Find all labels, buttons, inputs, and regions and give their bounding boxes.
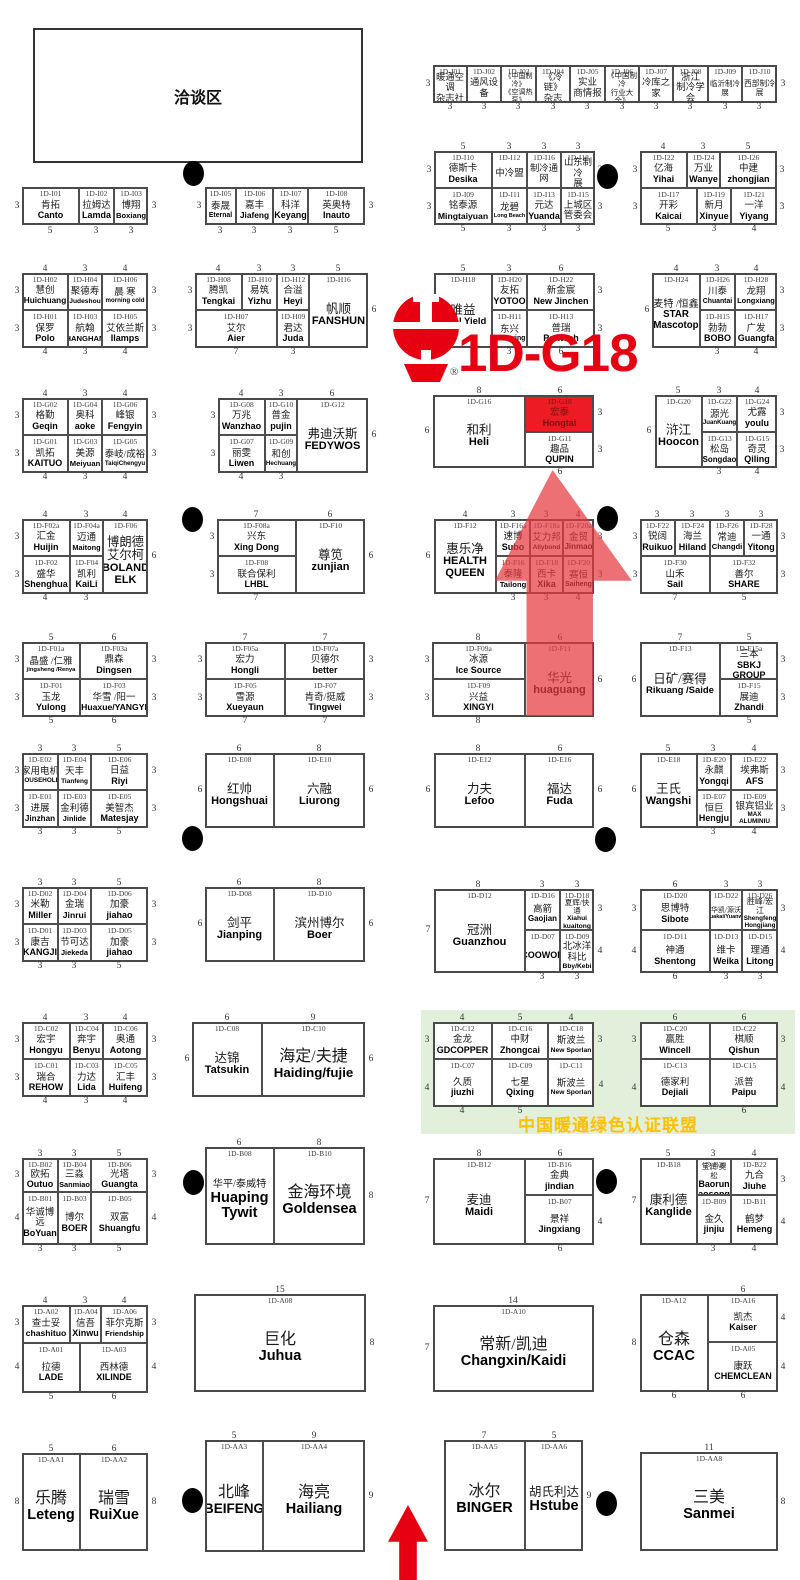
booth-id: 1D-G09 bbox=[269, 437, 294, 446]
dimension-label: 4 bbox=[781, 1313, 786, 1323]
dimension-label: 5 bbox=[742, 593, 747, 603]
booth-name-en: BOLAND ELK bbox=[103, 563, 148, 587]
booth-name-en: Benyu bbox=[73, 1046, 101, 1056]
dimension-label: 3 bbox=[507, 264, 512, 274]
dimension-label: 4 bbox=[752, 1149, 757, 1159]
booth-cell: 1D-B16金典jindian bbox=[525, 1158, 594, 1195]
booth-cell: 1D-C06奥通Aotong bbox=[103, 1022, 148, 1059]
dimension-label: 3 bbox=[15, 1170, 20, 1180]
dimension-label: 3 bbox=[15, 286, 20, 296]
dimension-label: 3 bbox=[72, 961, 77, 971]
booth-name-cn: 红帅 bbox=[227, 782, 252, 796]
booth-names: 宏力Hongli bbox=[231, 653, 259, 678]
booth-names: 北峰BEIFENG bbox=[205, 1451, 263, 1551]
dimension-label: 3 bbox=[152, 938, 157, 948]
dimension-label: 3 bbox=[129, 226, 134, 236]
dimension-label: 3 bbox=[633, 202, 638, 212]
booth-id: 1D-A01 bbox=[39, 1345, 64, 1354]
booth-name-en: jiuzhi bbox=[451, 1088, 474, 1098]
booth-name-en: RuiXue bbox=[89, 1508, 139, 1524]
dimension-label: 5 bbox=[461, 142, 466, 152]
booth-id: 1D-E02 bbox=[28, 755, 52, 764]
dimension-label: 3 bbox=[252, 226, 257, 236]
booth-id: 1D-I03 bbox=[120, 189, 142, 198]
booth-cell: 1D-A04信吾Xinwu bbox=[70, 1305, 101, 1343]
booth-id: 1D-B16 bbox=[547, 1160, 571, 1169]
booth-id: 1D-I16 bbox=[533, 153, 555, 162]
dimension-label: 3 bbox=[725, 510, 730, 520]
booth-cell: 1D-E06日益Riyi bbox=[91, 753, 148, 790]
booth-id: 1D-C16 bbox=[508, 1024, 532, 1033]
booth-id: 1D-G16 bbox=[467, 397, 492, 406]
booth-name-en: Yiyang bbox=[739, 212, 768, 222]
booth-name-en: HEALTH QUEEN bbox=[443, 556, 487, 580]
dimension-label: 6 bbox=[672, 1391, 677, 1401]
booth-names: 《中国制冷》 《空调热泵》 bbox=[502, 76, 535, 102]
booth-name-en: Kaicai bbox=[655, 212, 682, 222]
booth-cell: 1D-F09兴益XINGYI bbox=[432, 679, 525, 717]
booth-id: 1D-H13 bbox=[549, 312, 574, 321]
dimension-label: 7 bbox=[254, 510, 259, 520]
booth-id: 1D-G05 bbox=[113, 437, 138, 446]
dimension-label: 4 bbox=[43, 472, 48, 482]
booth-names: 金利德Jinlide bbox=[60, 801, 89, 827]
dimension-label: 3 bbox=[781, 532, 786, 542]
booth-id: 1D-A02 bbox=[34, 1307, 59, 1316]
dimension-label: 8 bbox=[369, 1191, 374, 1201]
booth-cell: 1D-E10六融Liurong bbox=[274, 753, 365, 828]
booth-name-en: Judeshou bbox=[69, 298, 101, 305]
dimension-label: 4 bbox=[755, 386, 760, 396]
dimension-label: 3 bbox=[655, 510, 660, 520]
booth-name-en: BoYuan bbox=[23, 1229, 57, 1239]
booth-names: 金典jindian bbox=[545, 1169, 574, 1194]
dimension-label: 4 bbox=[781, 1083, 786, 1093]
booth-name-en: jindian bbox=[545, 1182, 574, 1192]
booth-cell: 1D-C13德家利Dejiali bbox=[640, 1059, 710, 1107]
dimension-label: 4 bbox=[598, 946, 603, 956]
booth-id: 1D-F04 bbox=[75, 558, 98, 567]
dimension-label: 3 bbox=[781, 570, 786, 580]
dimension-label: 5 bbox=[49, 633, 54, 643]
booth-name-en: TaiqiChengyu bbox=[105, 461, 145, 468]
booth-cell: 1D-I16制冷通网 bbox=[527, 151, 561, 188]
booth-name-en: Guangfa bbox=[738, 334, 775, 344]
booth-name-en: chashituo bbox=[26, 1329, 67, 1338]
booth-id: 1D-I13 bbox=[533, 190, 555, 199]
booth-names: 力夫Lefoo bbox=[465, 764, 495, 827]
booth-names: 普金pujin bbox=[270, 409, 292, 434]
booth-id: 1D-D01 bbox=[28, 926, 53, 935]
booth-id: 1D-AA1 bbox=[38, 1455, 64, 1464]
booth-name-en: CHEMCLEAN bbox=[714, 1372, 772, 1382]
dimension-label: 4 bbox=[43, 389, 48, 399]
dimension-label: 3 bbox=[83, 472, 88, 482]
booth-names: 力达Lida bbox=[77, 1070, 96, 1096]
booth-names: 友拓YOTOO bbox=[493, 284, 525, 309]
dimension-label: 4 bbox=[781, 946, 786, 956]
booth-names: 维卡Weika bbox=[713, 941, 739, 972]
dimension-label: 3 bbox=[152, 201, 157, 211]
booth-cell: 1D-H12合溢Heyi bbox=[277, 273, 309, 310]
booth-names: 日益Riyi bbox=[110, 764, 129, 789]
dimension-label: 3 bbox=[15, 411, 20, 421]
booth-name-cn: 惠乐净 bbox=[446, 542, 484, 556]
booth-names: 节可达Jiekeda bbox=[60, 935, 89, 961]
booth-name-en: Juhua bbox=[259, 1349, 302, 1365]
dimension-label: 3 bbox=[717, 467, 722, 477]
booth-id: 1D-E10 bbox=[308, 755, 332, 764]
booth-id: 1D-I02 bbox=[86, 189, 108, 198]
booth-id: 1D-A05 bbox=[731, 1344, 756, 1353]
booth-name-en: Xiahui kuaitong bbox=[563, 915, 591, 929]
booth-name-en: Jingxiang bbox=[538, 1225, 580, 1235]
booth-name-cn: 三美 bbox=[693, 1489, 725, 1507]
booth-cell: 1D-I02拉姆达Lamda bbox=[79, 187, 114, 225]
booth-name-en: Juda bbox=[282, 334, 303, 344]
booth-name-cn: 麦迪 bbox=[466, 1193, 491, 1207]
dimension-label: 3 bbox=[780, 286, 785, 296]
dimension-label: 3 bbox=[576, 142, 581, 152]
dimension-label: 3 bbox=[540, 972, 545, 982]
booth-cell: 1D-G12弗迪沃斯FEDYWOS bbox=[297, 398, 368, 473]
booth-names: 西部制冷展 bbox=[743, 76, 776, 102]
dimension-label: 4 bbox=[122, 1296, 127, 1306]
booth-name-en: Heli bbox=[469, 437, 489, 449]
dimension-label: 7 bbox=[243, 716, 248, 726]
booth-name-en: Aotong bbox=[110, 1046, 142, 1056]
booth-cell: 1D-H09君达Juda bbox=[277, 310, 309, 348]
dimension-label: 4 bbox=[463, 510, 468, 520]
booth-names: 加豪jiahao bbox=[106, 935, 132, 961]
booth-id: 1D-F01 bbox=[39, 681, 62, 690]
dimension-label: 3 bbox=[279, 472, 284, 482]
booth-cell: 1D-J08浙江 制冷学会 bbox=[673, 65, 708, 103]
booth-name-cn: 冠洲 bbox=[467, 923, 492, 937]
dimension-label: 4 bbox=[752, 744, 757, 754]
dimension-label: 4 bbox=[674, 264, 679, 274]
dimension-label: 3 bbox=[482, 102, 487, 112]
booth-cell: 1D-G10普金pujin bbox=[265, 398, 297, 435]
dimension-label: 4 bbox=[43, 510, 48, 520]
dimension-label: 3 bbox=[781, 1175, 786, 1185]
dimension-label: 6 bbox=[225, 1013, 230, 1023]
dimension-label: 3 bbox=[781, 655, 786, 665]
booth-cell: 1D-D09北冰洋 科比Bby/Kebi bbox=[560, 930, 594, 973]
booth-names: 迈通Maitong bbox=[72, 530, 100, 555]
booth-name-en: Desika bbox=[448, 175, 477, 185]
booth-cell: 1D-A06菲尔克斯Friendship bbox=[101, 1305, 148, 1343]
dimension-label: 4 bbox=[781, 1217, 786, 1227]
booth-cell: 1D-E05美智杰Matesjay bbox=[91, 790, 148, 828]
booth-names: 艾依兰斯Ilamps bbox=[106, 321, 144, 347]
booth-id: 1D-D16 bbox=[530, 891, 555, 900]
booth-id: 1D-AA5 bbox=[471, 1442, 497, 1451]
booth-id: 1D-F28 bbox=[749, 521, 772, 530]
booth-names: 新金宸New Jinchen bbox=[533, 284, 588, 309]
booth-id: 1D-F22 bbox=[646, 521, 669, 530]
dimension-label: 3 bbox=[448, 102, 453, 112]
booth-cell: 1D-B08华平/泰威特Huaping Tywit bbox=[205, 1147, 274, 1245]
booth-name-en: jingsheng /Renya bbox=[27, 667, 76, 673]
booth-names: 日矿/赛得Rikuang /Saide bbox=[646, 653, 714, 716]
booth-cell: 1D-D08剑平Jianping bbox=[205, 887, 274, 962]
booth-names: 博翔Boxiang bbox=[116, 198, 146, 224]
dimension-label: 3 bbox=[84, 1013, 89, 1023]
booth-names: 菲尔克斯Friendship bbox=[105, 1316, 144, 1342]
dimension-label: 5 bbox=[666, 1149, 671, 1159]
booth-name-en: Jiafeng bbox=[240, 211, 269, 220]
booth-id: 1D-E16 bbox=[548, 755, 572, 764]
booth-cell: 1D-I09铭泰源Mingtaiyuan bbox=[434, 188, 492, 225]
dimension-label: 5 bbox=[49, 716, 54, 726]
dimension-label: 4 bbox=[754, 264, 759, 274]
booth-cell: 1D-D16高箭Gaojian bbox=[525, 889, 560, 930]
dimension-label: 3 bbox=[688, 102, 693, 112]
booth-id: 1D-C06 bbox=[113, 1024, 137, 1033]
booth-cell: 1D-E01进展Jinzhan bbox=[22, 790, 58, 828]
dimension-label: 3 bbox=[542, 142, 547, 152]
booth-name-cn: 暖通空调 杂志社 bbox=[434, 73, 466, 103]
booth-name-en: Haiding/fujie bbox=[274, 1066, 354, 1080]
booth-name-en: SBKJ GROUP bbox=[721, 661, 777, 679]
dimension-label: 5 bbox=[461, 264, 466, 274]
booth-name-cn: 冷库之家 bbox=[640, 78, 672, 99]
booth-id: 1D-G06 bbox=[113, 400, 138, 409]
booth-cell: 1D-I12中冷盟 bbox=[492, 151, 527, 188]
dimension-label: 3 bbox=[427, 202, 432, 212]
booth-cell: 1D-G04奥科aoke bbox=[68, 398, 102, 435]
dimension-label: 11 bbox=[704, 1443, 713, 1453]
booth-names: 惠乐净HEALTH QUEEN bbox=[443, 530, 487, 593]
booth-names: 格勤Geqin bbox=[32, 409, 58, 434]
booth-id: 1D-I21 bbox=[743, 190, 765, 199]
booth-cell: 1D-H08腾凯Tengkai bbox=[195, 273, 242, 310]
dimension-label: 3 bbox=[15, 532, 20, 542]
dimension-label: 7 bbox=[243, 633, 248, 643]
booth-names: 中冷盟 bbox=[495, 162, 524, 187]
booth-cell: 1D-C09七星Qixing bbox=[492, 1059, 548, 1107]
booth-cell: 1D-C05汇丰Huifeng bbox=[103, 1059, 148, 1097]
booth-cell: 1D-G01凯拓KAITUO bbox=[22, 435, 68, 473]
booth-id: 1D-B02 bbox=[28, 1160, 52, 1169]
booth-cell: 1D-F26常迪Changdi bbox=[710, 519, 744, 556]
booth-names: 中建zhongjian bbox=[728, 162, 770, 187]
dimension-label: 3 bbox=[15, 804, 20, 814]
booth-name-cn: 实业 商情报 bbox=[573, 78, 602, 99]
booth-id: 1D-A03 bbox=[102, 1345, 127, 1354]
negotiation-area-label: 洽谈区 bbox=[174, 84, 222, 108]
booth-name-en: Mingtaiyuan bbox=[438, 212, 488, 221]
booth-name-cn: 华平/泰威特 bbox=[213, 1179, 267, 1190]
booth-name-en: Dingsen bbox=[96, 666, 132, 676]
dimension-label: 3 bbox=[633, 165, 638, 175]
booth-id: 1D-A08 bbox=[268, 1296, 293, 1305]
dimension-label: 3 bbox=[711, 1149, 716, 1159]
dimension-label: 3 bbox=[598, 408, 603, 418]
booth-name-en: QUPIN bbox=[545, 455, 574, 465]
booth-id: 1D-C15 bbox=[732, 1061, 756, 1070]
booth-id: 1D-D09 bbox=[565, 932, 590, 941]
booth-names: 晨 寒morning cold bbox=[106, 284, 145, 309]
booth-id: 1D-C22 bbox=[732, 1024, 756, 1033]
booth-cell: 1D-C08达锦Tatsukin bbox=[192, 1022, 262, 1097]
booth-cell: 1D-I06嘉丰Jiafeng bbox=[236, 187, 273, 225]
dimension-label: 6 bbox=[558, 1149, 563, 1159]
booth-names: 滨州博尔Boer bbox=[294, 898, 344, 961]
booth-names: 奇灵Qiling bbox=[744, 443, 770, 467]
booth-name-cn: 日矿/赛得 bbox=[653, 672, 706, 686]
dimension-label: 6 bbox=[558, 386, 563, 396]
dimension-label: 8 bbox=[476, 716, 481, 726]
booth-names: 西林德XILINDE bbox=[96, 1354, 132, 1392]
booth-names: 开彩Kaicai bbox=[655, 199, 682, 224]
booth-name-en: Keyang bbox=[274, 211, 307, 221]
booth-name-en: STAR Mascotop bbox=[653, 310, 698, 331]
booth-id: 1D-D07 bbox=[530, 932, 555, 941]
booth-names: 奔宇Benyu bbox=[73, 1033, 101, 1058]
dimension-label: 3 bbox=[15, 766, 20, 776]
booth-names: 海兰Hiland bbox=[679, 530, 707, 555]
booth-name-cn: 常新/凯迪 bbox=[479, 1336, 547, 1354]
booth-cell: 1D-G15奇灵Qiling bbox=[737, 432, 777, 468]
booth-name-en: Polo bbox=[35, 334, 55, 344]
booth-id: 1D-AA2 bbox=[101, 1455, 127, 1464]
dimension-label: 3 bbox=[758, 972, 763, 982]
dimension-label: 5 bbox=[747, 633, 752, 643]
booth-name-en: Hengju bbox=[699, 814, 729, 824]
booth-name-cn: 冰尔 bbox=[468, 1483, 500, 1501]
booth-cell: 1D-B03博尔BOER bbox=[58, 1192, 91, 1245]
booth-id: 1D-E22 bbox=[743, 755, 767, 764]
booth-id: 1D-D03 bbox=[62, 926, 87, 935]
booth-cell: 1D-B01华诚博远BoYuan bbox=[22, 1192, 58, 1245]
dimension-label: 3 bbox=[542, 224, 547, 234]
booth-name-cn: 斯波兰 bbox=[557, 1036, 586, 1047]
dimension-label: 3 bbox=[152, 766, 157, 776]
booth-cell: 1D-D11神通Shentong bbox=[640, 930, 710, 973]
dimension-label: 3 bbox=[757, 102, 762, 112]
booth-cell: 1D-A05康跃CHEMCLEAN bbox=[708, 1342, 778, 1392]
booth-name-en: Xinyue bbox=[699, 212, 728, 222]
booth-names: 浙江 制冷学会 bbox=[674, 76, 707, 102]
dimension-label: 3 bbox=[780, 445, 785, 455]
booth-name-en: HOUSEHOLD bbox=[22, 778, 58, 785]
booth-cell: 1D-H03航翰HANGHAN bbox=[68, 310, 102, 348]
dimension-label: 6 bbox=[237, 744, 242, 754]
dimension-label: 6 bbox=[741, 1391, 746, 1401]
dimension-label: 3 bbox=[780, 165, 785, 175]
booth-id: 1D-H12 bbox=[281, 275, 306, 284]
dimension-label: 6 bbox=[645, 305, 650, 315]
booth-names: 聚德寿Judeshou bbox=[69, 284, 101, 309]
column-marker-dot bbox=[183, 161, 204, 186]
booth-names: 尤露youlu bbox=[745, 406, 769, 431]
dimension-label: 3 bbox=[72, 1244, 77, 1254]
booth-name-cn: 夏辉/快通 bbox=[561, 899, 593, 916]
booth-name-en: Xing Dong bbox=[234, 543, 279, 553]
booth-names: 奥科aoke bbox=[75, 409, 96, 434]
dimension-label: 4 bbox=[755, 467, 760, 477]
booth-id: 1D-I11 bbox=[499, 190, 520, 199]
booth-name-cn: 泰晟 bbox=[211, 202, 230, 213]
booth-id: 1D-H07 bbox=[224, 312, 249, 321]
dimension-label: 5 bbox=[518, 1013, 523, 1023]
booth-names: 宏宇Hongyu bbox=[29, 1033, 63, 1058]
dimension-label: 8 bbox=[152, 1497, 157, 1507]
booth-name-en: Hechuang bbox=[266, 461, 296, 468]
booth-names: 拉姆达Lamda bbox=[82, 198, 111, 224]
booth-cell: 1D-G16和利Heli bbox=[433, 395, 525, 468]
booth-id: 1D-F05a bbox=[232, 644, 259, 653]
booth-name-en: Litong bbox=[746, 957, 774, 967]
booth-id: 1D-F12 bbox=[453, 521, 476, 530]
dimension-label: 8 bbox=[15, 1497, 20, 1507]
booth-name-en: Hongli bbox=[231, 666, 259, 676]
booth-name-en: Dejiali bbox=[662, 1088, 689, 1098]
booth-name-en: YOTOO bbox=[493, 297, 525, 307]
dimension-label: 7 bbox=[234, 347, 239, 357]
booth-names: 双富Shuangfu bbox=[99, 1203, 141, 1244]
dimension-label: 5 bbox=[552, 1431, 557, 1441]
booth-names: 万兆Wanzhao bbox=[222, 409, 261, 434]
booth-name-en: Heyi bbox=[283, 297, 302, 307]
booth-cell: 1D-F05雪源Xueyaun bbox=[205, 679, 285, 717]
booth-id: 1D-AA8 bbox=[696, 1454, 722, 1463]
booth-names: 剑平Jianping bbox=[217, 898, 262, 961]
booth-cell: 1D-H05艾依兰斯Ilamps bbox=[102, 310, 148, 348]
dimension-label: 3 bbox=[84, 1096, 89, 1106]
booth-cell: 1D-H22新金宸New Jinchen bbox=[527, 273, 595, 310]
booth-cell: 1D-F15展迪Zhandi bbox=[720, 679, 778, 717]
booth-cell: 1D-C16中财Zhongcai bbox=[492, 1022, 548, 1059]
booth-cell: 1D-C07久质jiuzhi bbox=[433, 1059, 492, 1107]
dimension-label: 8 bbox=[317, 744, 322, 754]
booth-names: 弗迪沃斯FEDYWOS bbox=[305, 409, 361, 472]
dimension-label: 3 bbox=[425, 693, 430, 703]
booth-id: 1D-F08 bbox=[245, 558, 268, 567]
booth-names: 浒江Hoocon bbox=[658, 406, 699, 467]
booth-name-en: Ice Source bbox=[456, 666, 502, 676]
booth-names: 临沂制冷展 bbox=[709, 76, 741, 102]
dimension-label: 3 bbox=[620, 102, 625, 112]
dimension-label: 5 bbox=[334, 226, 339, 236]
dimension-label: 3 bbox=[724, 880, 729, 890]
booth-names: 龙碧Long Beach bbox=[494, 199, 525, 224]
booth-name-en: Lefoo bbox=[465, 796, 495, 808]
booth-id: 1D-F05 bbox=[233, 681, 256, 690]
booth-cell: 1D-B09金久jinjiu bbox=[697, 1195, 731, 1245]
dimension-label: 6 bbox=[112, 716, 117, 726]
booth-cell: 1D-I15上城区 管委会 bbox=[561, 188, 595, 225]
booth-names: 锐阔Ruikuo bbox=[642, 530, 673, 555]
booth-name-en: Songdao bbox=[703, 456, 737, 465]
dimension-label: 6 bbox=[330, 389, 335, 399]
booth-name-cn: 宝润/奥松 bbox=[698, 1163, 730, 1180]
booth-id: 1D-F01a bbox=[38, 644, 65, 653]
booth-name-en: Guanzhou bbox=[453, 937, 507, 949]
booth-id: 1D-C10 bbox=[301, 1024, 325, 1033]
booth-name-cn: 西部制冷展 bbox=[743, 80, 776, 97]
booth-cell: 1D-D01康吉KANGJI bbox=[22, 924, 58, 962]
booth-id: 1D-H18 bbox=[451, 275, 476, 284]
booth-name-en: Zhandi bbox=[734, 703, 764, 713]
booth-name-cn: 龙碧 bbox=[500, 203, 519, 214]
booth-name-cn: 浒江 bbox=[666, 423, 691, 437]
booth-id: 1D-F26 bbox=[715, 521, 738, 530]
booth-id: 1D-I15 bbox=[567, 190, 589, 199]
dimension-label: 7 bbox=[673, 593, 678, 603]
